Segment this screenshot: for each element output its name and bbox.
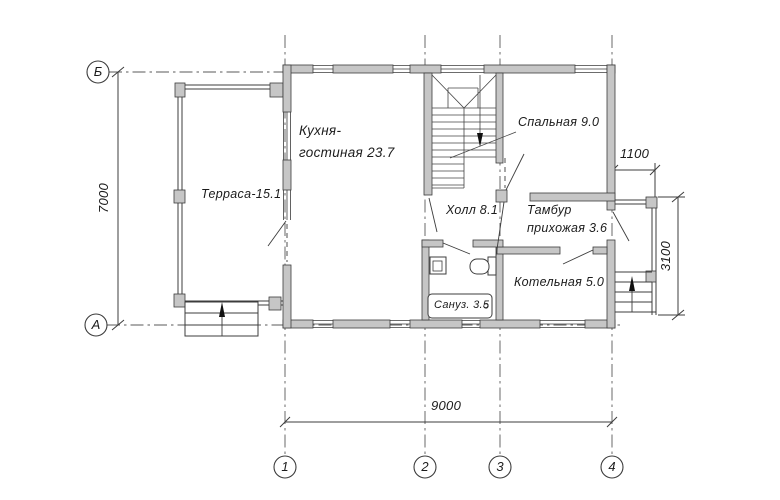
stair-down-arrow	[477, 133, 483, 147]
label-vestibule-line2: прихожая 3.6	[527, 222, 607, 236]
label-boiler-room: Котельная 5.0	[514, 276, 604, 290]
label-vestibule-line1: Тамбур	[527, 204, 572, 218]
label-bathroom: Сануз. 3.5	[434, 299, 489, 311]
label-kitchen-living-line1: Кухня-	[299, 124, 341, 139]
axis-marker-2: 2	[414, 456, 436, 478]
label-terrace: Терраса-15.1	[201, 188, 281, 202]
axis-marker-1: 1	[274, 456, 296, 478]
axis-marker-b: Б	[87, 61, 109, 83]
floor-plan-canvas: Кухня- гостиная 23.7 Терраса-15.1 Спальн…	[0, 0, 780, 500]
axis-marker-3: 3	[489, 456, 511, 478]
axis-marker-4: 4	[601, 456, 623, 478]
terrace-steps	[185, 302, 258, 336]
porch-structure	[613, 200, 656, 315]
label-hall: Холл 8.1	[446, 204, 498, 218]
dimension-7000: 7000	[97, 168, 111, 228]
axis-grid-lines	[107, 35, 620, 456]
dimension-9000: 9000	[431, 399, 461, 413]
porch-steps-up-arrow	[629, 276, 635, 291]
toilet-bowl	[470, 259, 489, 274]
label-bedroom: Спальная 9.0	[518, 116, 599, 130]
axis-marker-a: А	[85, 314, 107, 336]
dimension-3100: 3100	[659, 226, 673, 286]
label-kitchen-living-line2: гостиная 23.7	[299, 146, 395, 161]
dimension-1100: 1100	[620, 147, 649, 161]
